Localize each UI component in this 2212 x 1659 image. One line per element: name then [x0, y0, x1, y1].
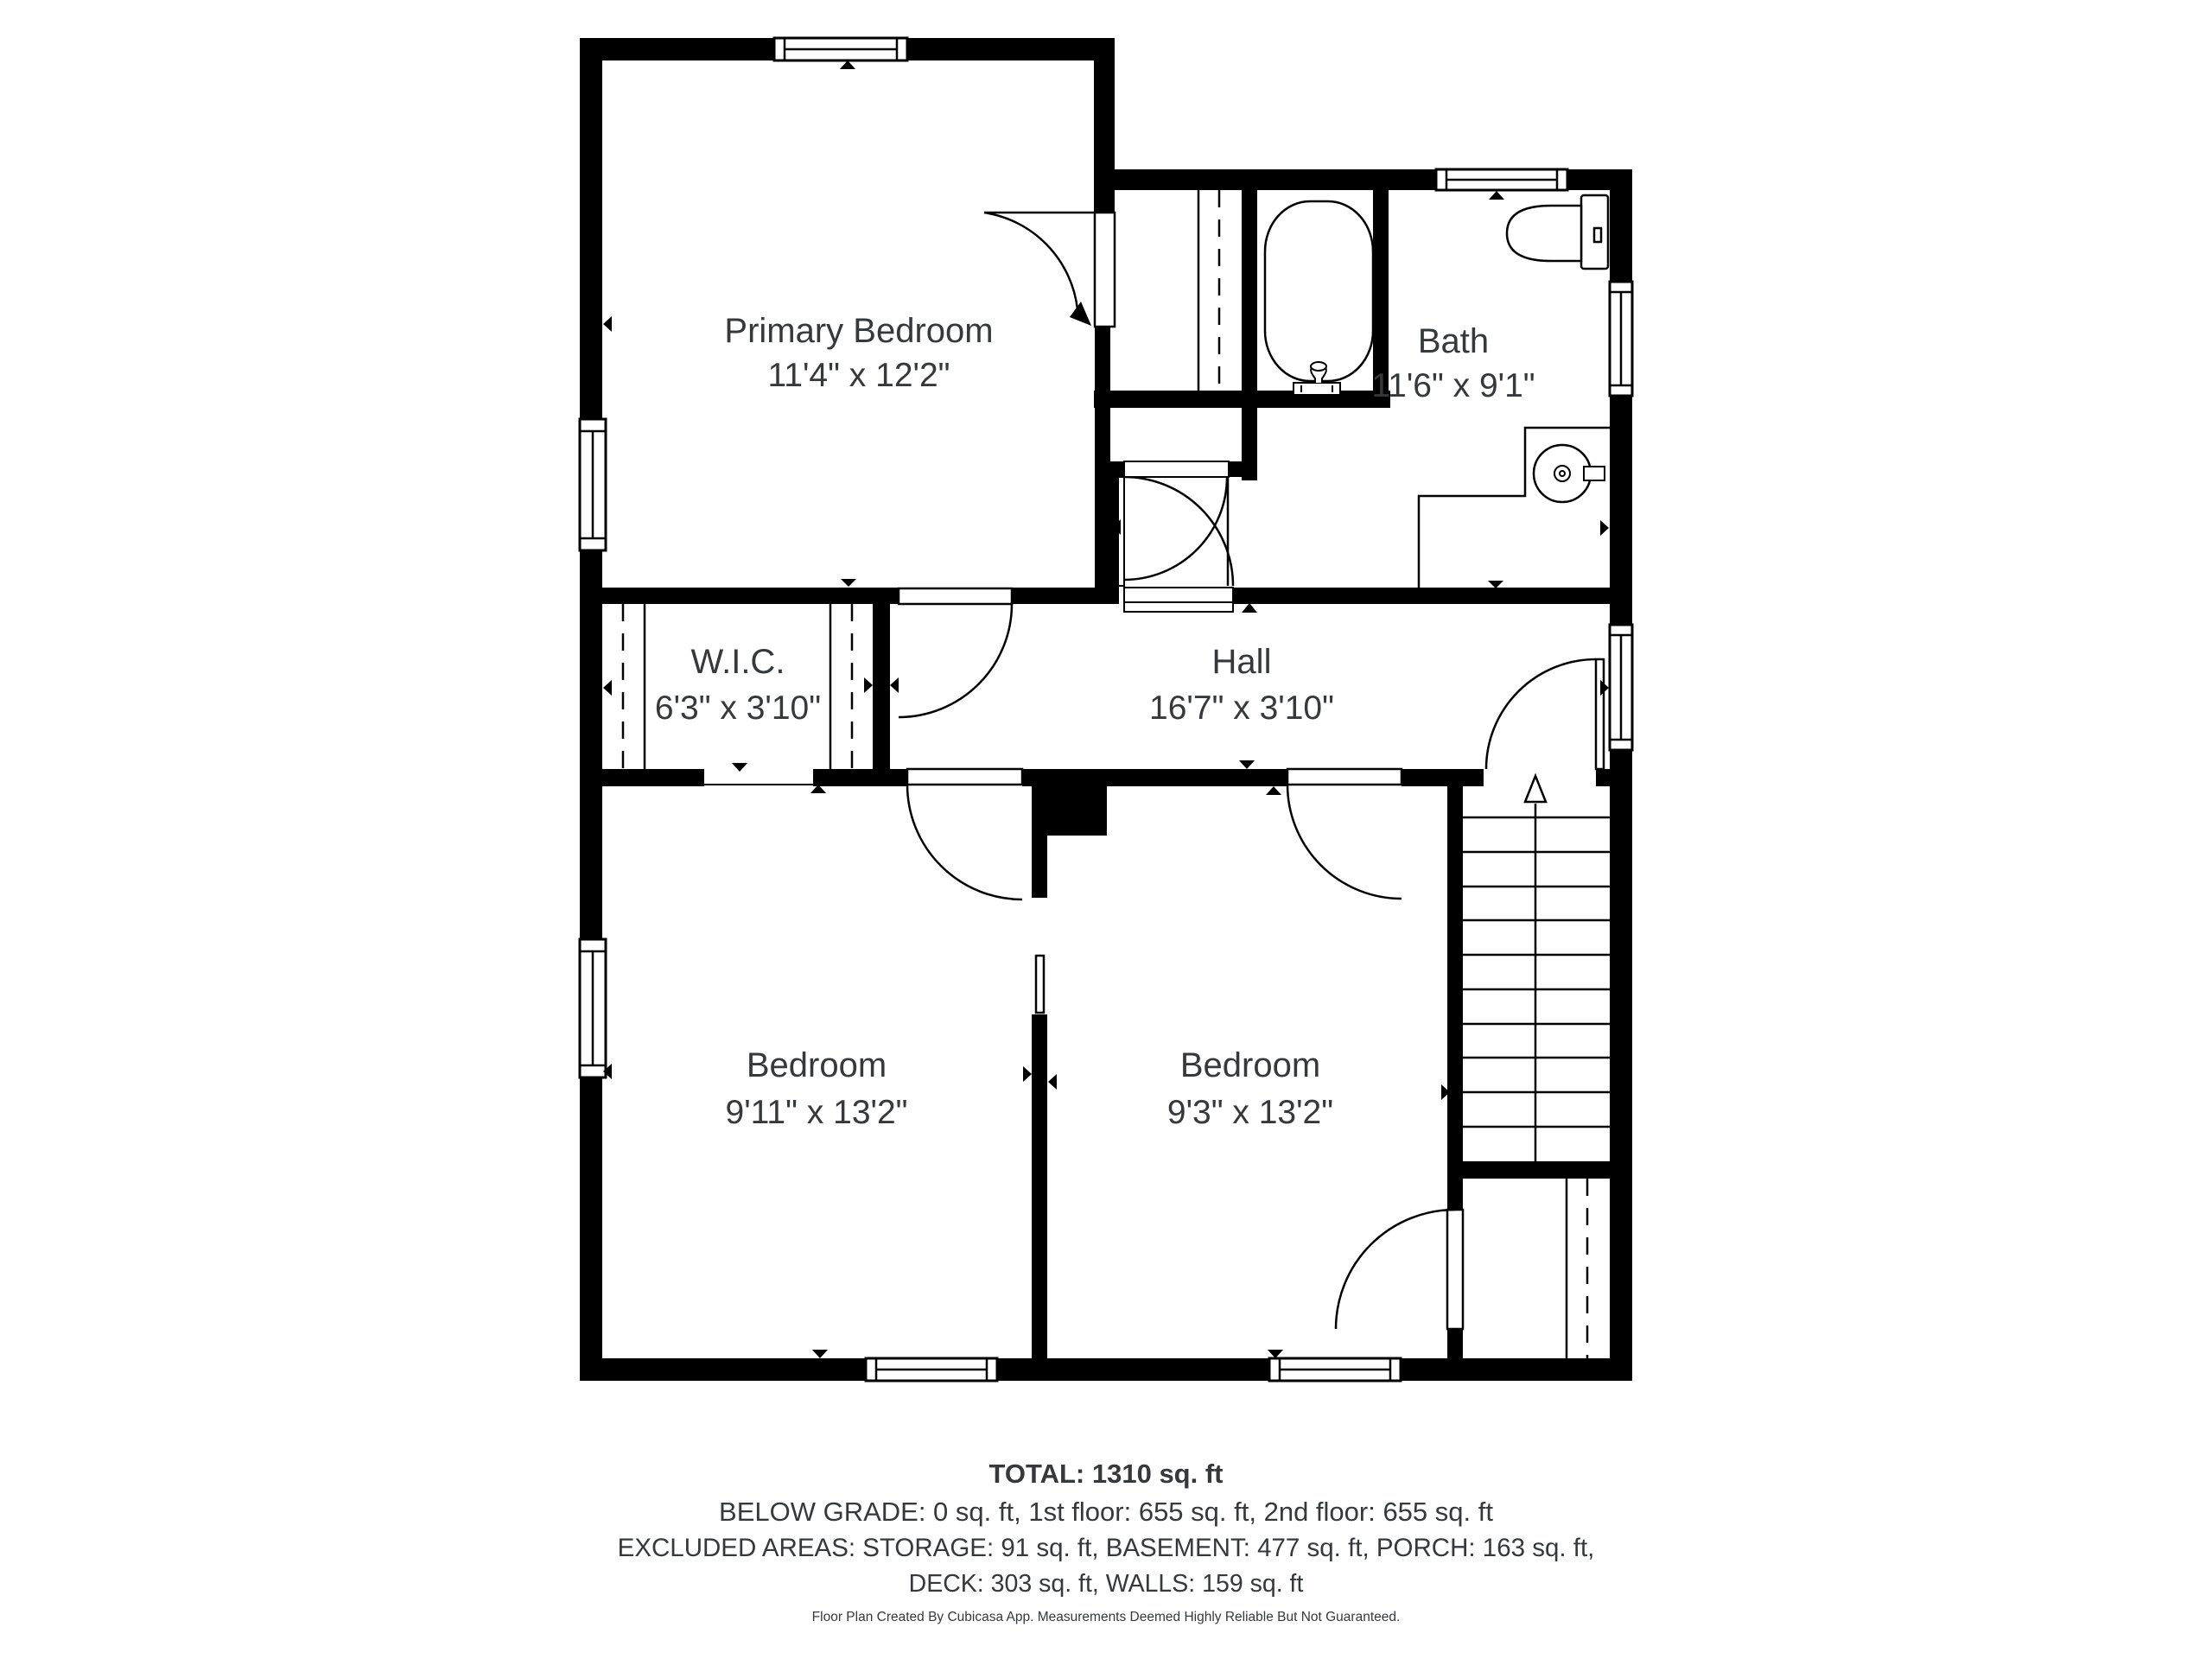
- svg-text:BELOW GRADE: 0 sq. ft, 1st flo: BELOW GRADE: 0 sq. ft, 1st floor: 655 sq…: [719, 1497, 1493, 1527]
- svg-text:W.I.C.: W.I.C.: [691, 643, 785, 681]
- svg-text:TOTAL: 1310 sq. ft: TOTAL: 1310 sq. ft: [988, 1459, 1223, 1489]
- svg-text:EXCLUDED AREAS: STORAGE: 91 sq: EXCLUDED AREAS: STORAGE: 91 sq. ft, BASE…: [618, 1534, 1595, 1562]
- svg-text:9'11" x 13'2": 9'11" x 13'2": [726, 1094, 908, 1131]
- svg-text:Hall: Hall: [1212, 643, 1272, 681]
- svg-text:16'7" x 3'10": 16'7" x 3'10": [1149, 690, 1334, 727]
- svg-text:Bath: Bath: [1418, 322, 1489, 360]
- svg-text:6'3" x 3'10": 6'3" x 3'10": [655, 690, 821, 727]
- svg-text:Primary Bedroom: Primary Bedroom: [724, 312, 993, 350]
- svg-text:11'4" x 12'2": 11'4" x 12'2": [768, 357, 950, 394]
- svg-text:11'6" x 9'1": 11'6" x 9'1": [1371, 367, 1535, 404]
- svg-text:Floor Plan Created By Cubicasa: Floor Plan Created By Cubicasa App. Meas…: [812, 1610, 1401, 1624]
- svg-text:DECK: 303 sq. ft, WALLS: 159 s: DECK: 303 sq. ft, WALLS: 159 sq. ft: [909, 1570, 1304, 1598]
- svg-text:9'3" x 13'2": 9'3" x 13'2": [1167, 1094, 1333, 1131]
- svg-text:Bedroom: Bedroom: [747, 1046, 887, 1084]
- svg-text:Bedroom: Bedroom: [1180, 1046, 1320, 1084]
